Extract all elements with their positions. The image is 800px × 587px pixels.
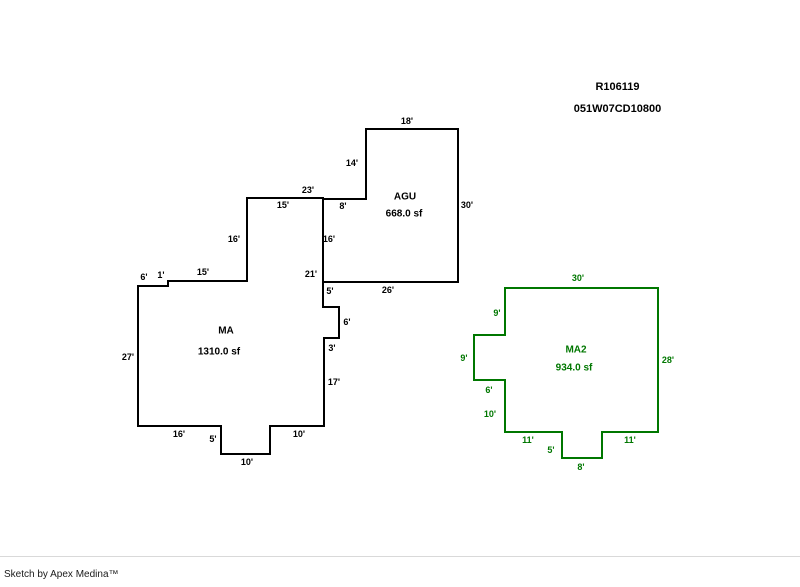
dimension-label: 10' [241,457,253,467]
footer-divider [0,556,800,557]
area-size-agu: 668.0 sf [386,209,423,220]
dimension-label: 5' [209,434,216,444]
dimension-label: 28' [662,355,674,365]
dimension-label: 10' [484,409,496,419]
dimension-label: 11' [522,435,534,445]
dimension-label: 1' [157,270,164,280]
dimension-label: 9' [460,353,467,363]
dimension-label: 11' [624,435,636,445]
dimension-label: 9' [493,308,500,318]
dimension-label: 15' [277,200,289,210]
dimension-label: 8' [339,201,346,211]
area-size-ma2: 934.0 sf [556,363,593,374]
dimension-label: 16' [173,429,185,439]
dimension-label: 17' [328,377,340,387]
dimension-label: 16' [323,234,335,244]
dimension-label: 3' [328,343,335,353]
dimension-label: 6' [485,385,492,395]
area-label-ma2: MA2 [565,345,587,356]
dimension-label: 27' [122,352,134,362]
dimension-label: 30' [572,273,584,283]
dimension-label: 16' [228,234,240,244]
sketch-credit: Sketch by Apex Medina™ [4,569,119,580]
area-size-ma: 1310.0 sf [198,347,241,358]
dimension-label: 5' [547,445,554,455]
sketch-canvas: MA1310.0 sf6'1'15'16'23'15'27'21'5'6'3'1… [0,0,800,587]
area-label-agu: AGU [394,192,416,203]
area-label-ma: MA [218,326,234,337]
dimension-label: 18' [401,116,413,126]
dimension-label: 15' [197,267,209,277]
dimension-label: 23' [302,185,314,195]
dimension-label: 5' [326,286,333,296]
dimension-label: 21' [305,269,317,279]
dimension-label: 26' [382,285,394,295]
dimension-label: 30' [461,200,473,210]
dimension-label: 6' [343,317,350,327]
dimension-label: 10' [293,429,305,439]
dimension-label: 6' [140,272,147,282]
dimension-label: 8' [577,462,584,472]
sketch-page: R106119 051W07CD10800 MA1310.0 sf6'1'15'… [0,0,800,587]
dimension-label: 14' [346,158,358,168]
